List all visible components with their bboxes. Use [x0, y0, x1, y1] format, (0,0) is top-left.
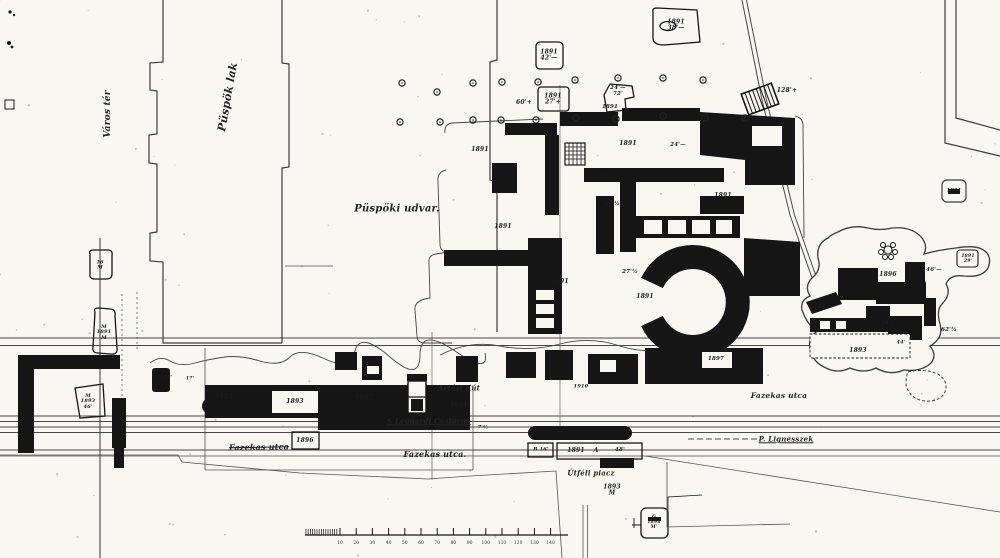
svg-text:20: 20: [353, 540, 359, 546]
svg-text:30: 30: [370, 540, 376, 546]
svg-text:120: 120: [514, 540, 523, 546]
scale-bar: 102030405060708090100110120130140: [305, 528, 568, 546]
svg-text:80: 80: [451, 540, 457, 546]
margin-marks: [5, 10, 15, 109]
map-linework: 102030405060708090100110120130140: [0, 0, 1000, 558]
conduit-hatch-block: [741, 83, 779, 115]
svg-text:100: 100: [482, 540, 491, 546]
map-document: 102030405060708090100110120130140 Város …: [0, 0, 1000, 558]
svg-text:130: 130: [530, 540, 539, 546]
svg-text:70: 70: [434, 540, 440, 546]
ruin-blob-east: [802, 227, 990, 401]
svg-text:140: 140: [546, 540, 555, 546]
svg-text:90: 90: [467, 540, 473, 546]
hatched-room: [565, 143, 585, 165]
svg-text:10: 10: [337, 540, 343, 546]
svg-text:60: 60: [418, 540, 424, 546]
ruin-walls-west: [18, 352, 634, 468]
svg-text:110: 110: [498, 540, 507, 546]
svg-text:50: 50: [402, 540, 408, 546]
svg-text:40: 40: [386, 540, 392, 546]
parcel-lines: [0, 348, 1000, 558]
